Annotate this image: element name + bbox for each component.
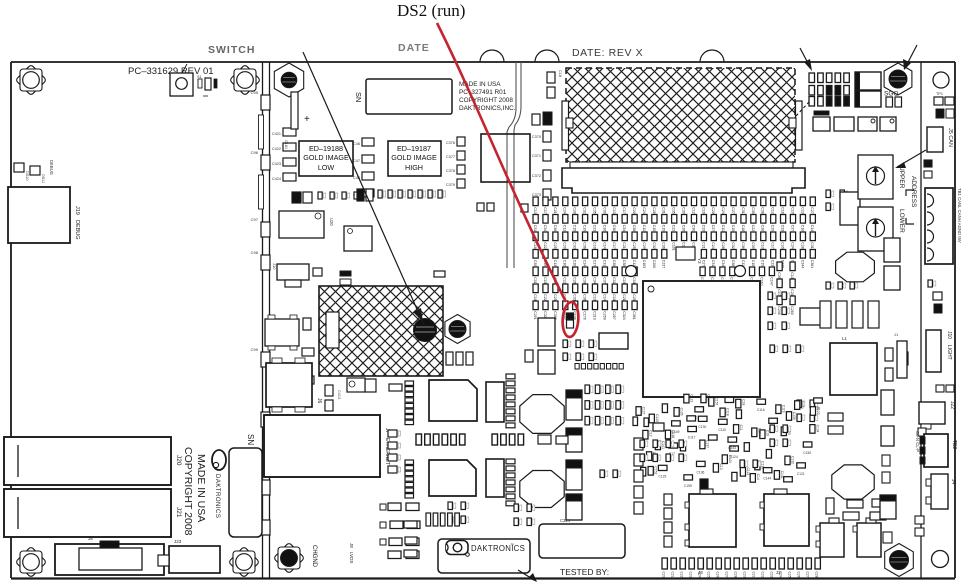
svg-text:C46: C46 [353, 142, 360, 146]
svg-text:GOLD IMAGE: GOLD IMAGE [303, 153, 349, 162]
svg-text:C155: C155 [684, 484, 692, 488]
svg-text:C21: C21 [752, 572, 756, 578]
svg-text:C26: C26 [716, 572, 720, 578]
svg-text:L1: L1 [842, 336, 848, 341]
svg-text:C12: C12 [648, 430, 652, 436]
svg-text:C344: C344 [800, 260, 804, 268]
svg-text:C13: C13 [719, 463, 723, 469]
svg-text:J4: J4 [950, 479, 956, 485]
svg-text:C28: C28 [734, 572, 738, 578]
svg-text:J6: J6 [316, 398, 322, 404]
svg-text:C27: C27 [806, 572, 810, 578]
svg-text:J20: J20 [175, 455, 182, 466]
svg-text:C324: C324 [560, 518, 571, 523]
svg-text:DAKTRONĨCS: DAKTRONĨCS [471, 544, 525, 553]
svg-text:J23: J23 [174, 539, 182, 544]
svg-text:C421: C421 [272, 132, 281, 136]
svg-text:C137: C137 [705, 440, 709, 448]
svg-text:J19: J19 [74, 206, 80, 215]
svg-text:HIGH: HIGH [405, 163, 423, 172]
svg-text:C119: C119 [781, 405, 785, 413]
svg-text:C152: C152 [654, 466, 658, 474]
svg-text:C132: C132 [791, 456, 795, 464]
svg-text:C176: C176 [583, 311, 587, 319]
svg-text:CHGND: CHGND [311, 545, 317, 568]
svg-text:LIGHT: LIGHT [946, 345, 952, 360]
svg-text:J10: J10 [946, 331, 952, 339]
svg-text:C99: C99 [251, 347, 259, 352]
svg-text:C140: C140 [728, 455, 732, 463]
svg-text:C129: C129 [658, 474, 666, 478]
svg-text:C371: C371 [532, 154, 541, 158]
svg-text:PC–327491 R01: PC–327491 R01 [459, 89, 507, 96]
svg-text:C127: C127 [642, 407, 646, 415]
svg-text:C95: C95 [251, 90, 259, 95]
svg-text:C157: C157 [714, 397, 718, 405]
svg-text:C154: C154 [757, 428, 761, 436]
svg-text:C287: C287 [612, 311, 616, 319]
svg-text:SWITCH: SWITCH [208, 44, 255, 56]
svg-text:MADE IN USA: MADE IN USA [195, 454, 207, 522]
svg-text:TESTED BY:: TESTED BY: [560, 567, 609, 577]
svg-text:C372: C372 [532, 174, 541, 178]
svg-text:C25: C25 [788, 572, 792, 578]
svg-text:C120: C120 [800, 401, 804, 409]
svg-text:C246: C246 [777, 306, 781, 314]
svg-text:ED–19188: ED–19188 [309, 144, 343, 153]
svg-text:C23: C23 [689, 572, 693, 578]
svg-text:ADDRESS: ADDRESS [910, 176, 917, 208]
svg-text:C116: C116 [757, 408, 765, 412]
svg-text:C118: C118 [726, 408, 730, 416]
svg-text:C150: C150 [803, 451, 811, 455]
svg-text:S1: S1 [197, 75, 202, 79]
svg-text:C25: C25 [707, 572, 711, 578]
svg-text:C381: C381 [810, 260, 814, 268]
svg-text:C136: C136 [697, 470, 705, 474]
svg-text:C27: C27 [725, 572, 729, 578]
svg-text:LOW: LOW [318, 163, 335, 172]
svg-text:J2: J2 [776, 570, 781, 575]
svg-text:DS11: DS11 [41, 174, 45, 183]
svg-text:C250: C250 [602, 311, 606, 319]
svg-text:C324: C324 [622, 311, 626, 319]
svg-text:J8: J8 [349, 543, 354, 548]
svg-text:DATE: DATE [398, 42, 430, 54]
svg-text:C283: C283 [790, 306, 794, 314]
svg-text:C126: C126 [680, 408, 684, 416]
svg-text:SN: SN [246, 434, 255, 445]
svg-text:J8: J8 [88, 536, 93, 541]
svg-text:C237: C237 [662, 260, 666, 268]
svg-text:J10: J10 [272, 263, 277, 270]
svg-text:C26: C26 [797, 572, 801, 578]
svg-text:C423: C423 [272, 162, 281, 166]
svg-text:DAKTRONICS,INC.: DAKTRONICS,INC. [459, 105, 516, 112]
svg-text:DATE: REV X: DATE: REV X [572, 47, 643, 59]
svg-text:C147: C147 [769, 277, 773, 285]
svg-text:TP1: TP1 [936, 92, 943, 96]
svg-text:Y3: Y3 [697, 258, 702, 264]
svg-text:C144: C144 [763, 477, 771, 481]
svg-text:C110: C110 [719, 428, 727, 432]
svg-text:DS2 (run): DS2 (run) [397, 1, 465, 20]
svg-text:C28: C28 [815, 572, 819, 578]
svg-text:C422: C422 [272, 147, 281, 151]
svg-text:C22: C22 [680, 572, 684, 578]
svg-text:C21: C21 [671, 572, 675, 578]
svg-text:U20: U20 [329, 218, 334, 226]
svg-text:C376: C376 [446, 141, 455, 145]
svg-text:DEBUG: DEBUG [49, 160, 54, 175]
svg-text:ED–19187: ED–19187 [397, 144, 431, 153]
svg-text:J21: J21 [175, 507, 182, 518]
svg-text:C143: C143 [728, 446, 736, 450]
svg-text:C47: C47 [353, 159, 360, 163]
svg-text:C20: C20 [662, 572, 666, 578]
svg-text:C114: C114 [746, 468, 750, 476]
svg-text:C200: C200 [652, 260, 656, 268]
svg-text:C123: C123 [689, 394, 693, 402]
svg-text:C97: C97 [251, 217, 259, 222]
svg-text:C424: C424 [272, 177, 281, 181]
svg-text:J22: J22 [949, 401, 955, 409]
svg-text:C11: C11 [739, 425, 743, 431]
svg-text:J5 CAN: J5 CAN [947, 128, 953, 147]
svg-text:C378: C378 [446, 169, 455, 173]
svg-text:C213: C213 [592, 311, 596, 319]
svg-text:C413: C413 [337, 390, 341, 399]
svg-text:DS10: DS10 [25, 171, 29, 181]
svg-text:C98: C98 [251, 250, 259, 255]
svg-text:SN: SN [354, 92, 363, 102]
svg-text:C139: C139 [792, 412, 796, 420]
svg-text:C23: C23 [770, 572, 774, 578]
svg-text:CL-N CL-P: CL-N CL-P [915, 431, 920, 452]
svg-text:TB1 CANL CANH AGND I5V: TB1 CANL CANH AGND I5V [957, 188, 961, 243]
svg-text:C142: C142 [780, 471, 784, 479]
svg-text:C18: C18 [558, 70, 562, 77]
svg-text:C101: C101 [672, 242, 676, 250]
svg-text:J3: J3 [698, 570, 703, 575]
svg-text:COPYRIGHT 2008: COPYRIGHT 2008 [182, 447, 194, 536]
svg-text:C134: C134 [815, 425, 819, 433]
svg-text:C18: C18 [741, 399, 745, 405]
svg-text:C22: C22 [761, 572, 765, 578]
svg-text:C121: C121 [797, 472, 805, 476]
svg-text:C145: C145 [655, 414, 659, 422]
svg-text:+: + [304, 114, 310, 125]
svg-text:DEBUG: DEBUG [74, 220, 80, 240]
svg-text:C377: C377 [446, 155, 455, 159]
svg-text:UPPER: UPPER [898, 166, 905, 189]
svg-text:C20: C20 [743, 572, 747, 578]
svg-text:C149: C149 [672, 430, 680, 434]
svg-text:C291: C291 [533, 311, 537, 319]
svg-text:C379: C379 [446, 183, 455, 187]
svg-text:C122: C122 [816, 407, 820, 415]
svg-text:LVDS: LVDS [349, 552, 354, 563]
svg-text:C361: C361 [632, 311, 636, 319]
svg-text:LOWER: LOWER [898, 209, 905, 233]
svg-text:TB2: TB2 [951, 440, 957, 449]
svg-text:C130: C130 [698, 425, 706, 429]
svg-text:C141: C141 [661, 441, 665, 449]
svg-text:C14: C14 [756, 474, 760, 480]
svg-text:C117: C117 [688, 435, 696, 439]
svg-text:C96: C96 [251, 150, 259, 155]
svg-text:C370: C370 [532, 135, 541, 139]
svg-text:C163: C163 [642, 260, 646, 268]
svg-text:COPYRIGHT 2008: COPYRIGHT 2008 [459, 97, 513, 104]
svg-text:GOLD IMAGE: GOLD IMAGE [391, 153, 437, 162]
svg-text:DAKTRONICS: DAKTRONICS [214, 474, 220, 518]
svg-text:C181: C181 [284, 140, 288, 149]
